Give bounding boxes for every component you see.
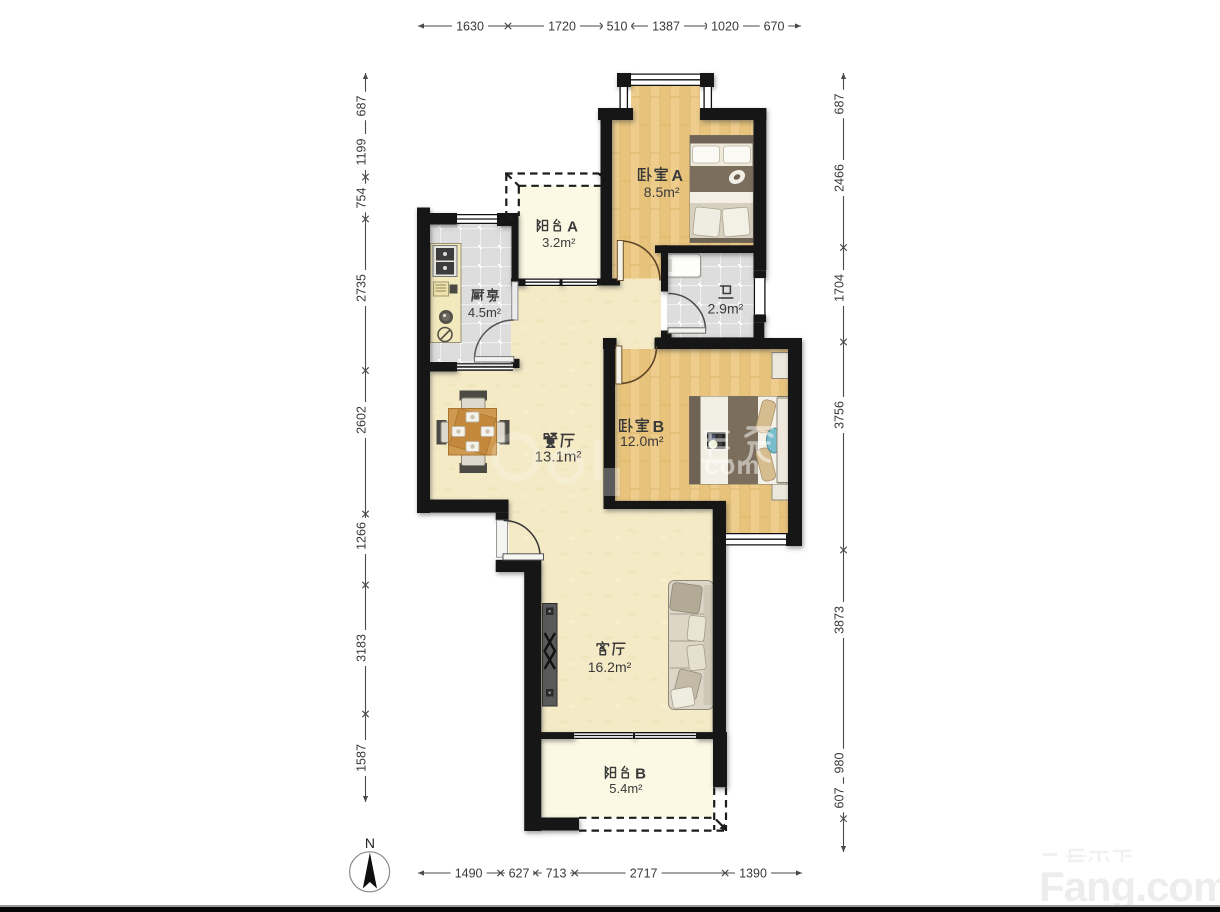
svg-text:687: 687 xyxy=(355,96,369,117)
svg-text:com: com xyxy=(704,450,760,480)
svg-text:1704: 1704 xyxy=(833,274,847,302)
svg-text:2735: 2735 xyxy=(355,274,369,302)
svg-text:510: 510 xyxy=(607,20,628,34)
svg-text:1199: 1199 xyxy=(355,139,369,166)
svg-text:N: N xyxy=(365,835,375,851)
svg-text:3.2m²: 3.2m² xyxy=(542,235,576,250)
svg-text:1630: 1630 xyxy=(456,20,484,34)
svg-text:2466: 2466 xyxy=(833,164,847,192)
svg-text:5.4m²: 5.4m² xyxy=(609,781,643,796)
svg-text:2.9m²: 2.9m² xyxy=(708,301,744,317)
svg-text:1387: 1387 xyxy=(652,20,680,34)
svg-text:A: A xyxy=(672,168,684,185)
svg-text:4.5m²: 4.5m² xyxy=(468,305,502,320)
svg-text:3873: 3873 xyxy=(833,606,847,634)
svg-text:1266: 1266 xyxy=(355,522,369,550)
svg-text:687: 687 xyxy=(833,94,847,115)
svg-text:3756: 3756 xyxy=(833,401,847,429)
svg-text:8.5m²: 8.5m² xyxy=(644,184,680,200)
svg-text:2602: 2602 xyxy=(355,406,369,434)
svg-text:3183: 3183 xyxy=(355,634,369,662)
svg-text:Fang.com: Fang.com xyxy=(1039,863,1220,910)
svg-text:627: 627 xyxy=(509,867,530,881)
svg-text:1020: 1020 xyxy=(711,20,739,34)
svg-text:713: 713 xyxy=(546,867,567,881)
svg-text:1490: 1490 xyxy=(455,867,483,881)
svg-text:16.2m²: 16.2m² xyxy=(588,659,632,675)
svg-text:12.0m²: 12.0m² xyxy=(620,433,664,449)
svg-text:1720: 1720 xyxy=(548,20,576,34)
svg-text:1390: 1390 xyxy=(739,867,767,881)
svg-text:754: 754 xyxy=(355,188,369,209)
svg-text:2717: 2717 xyxy=(630,867,658,881)
svg-text:A: A xyxy=(567,218,578,235)
svg-text:670: 670 xyxy=(764,20,785,34)
svg-text:1587: 1587 xyxy=(355,744,369,772)
svg-text:607: 607 xyxy=(833,788,847,809)
svg-text:B: B xyxy=(635,765,646,782)
svg-text:980: 980 xyxy=(833,753,847,774)
